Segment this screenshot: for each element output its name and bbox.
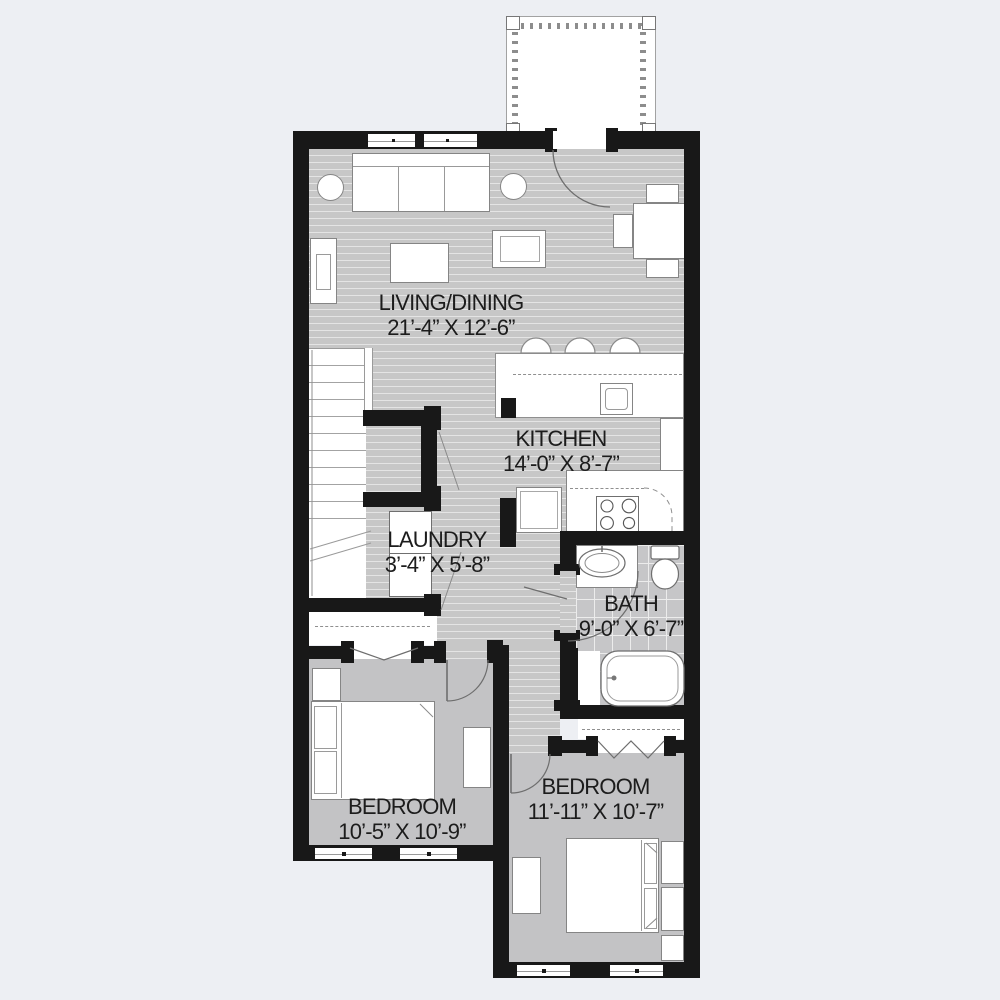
room-dims: 3’-4” X 5’-8” <box>352 552 522 577</box>
bar-stool <box>521 338 640 353</box>
room-dims: 9’-0” X 6’-7” <box>551 616 711 641</box>
room-label-laundry: LAUNDRY 3’-4” X 5’-8” <box>352 527 522 577</box>
fixtures-layer <box>0 0 1000 1000</box>
room-label-kitchen: KITCHEN 14’-0” X 8’-7” <box>461 426 661 476</box>
bifold-door-bedroom-1-closet <box>350 648 418 660</box>
range-burners <box>601 499 636 529</box>
bathtub <box>601 651 684 706</box>
room-name: BEDROOM <box>503 774 688 799</box>
window-tick <box>392 139 449 142</box>
room-dims: 21’-4” X 12’-6” <box>331 315 571 340</box>
room-label-bedroom-2: BEDROOM 11’-11” X 10’-7” <box>503 774 688 824</box>
bifold-door-bedroom-2-closet <box>598 741 664 758</box>
room-label-living-dining: LIVING/DINING 21’-4” X 12’-6” <box>331 290 571 340</box>
room-name: LAUNDRY <box>352 527 522 552</box>
toilet <box>651 546 679 589</box>
bedroom-1-door-swing <box>447 660 488 701</box>
laundry-door-leaves <box>439 432 461 610</box>
room-name: LIVING/DINING <box>331 290 571 315</box>
bathroom-sink <box>579 546 625 577</box>
balcony-door-swing <box>553 150 610 207</box>
room-label-bedroom-1: BEDROOM 10’-5” X 10’-9” <box>312 794 492 844</box>
room-name: BEDROOM <box>312 794 492 819</box>
upper-cabinet-corner-line <box>644 488 672 531</box>
room-name: KITCHEN <box>461 426 661 451</box>
room-dims: 11’-11” X 10’-7” <box>503 799 688 824</box>
room-dims: 14’-0” X 8’-7” <box>461 451 661 476</box>
room-name: BATH <box>551 591 711 616</box>
room-dims: 10’-5” X 10’-9” <box>312 819 492 844</box>
floor-plan: LIVING/DINING 21’-4” X 12’-6” KITCHEN 14… <box>0 0 1000 1000</box>
room-label-bath: BATH 9’-0” X 6’-7” <box>551 591 711 641</box>
